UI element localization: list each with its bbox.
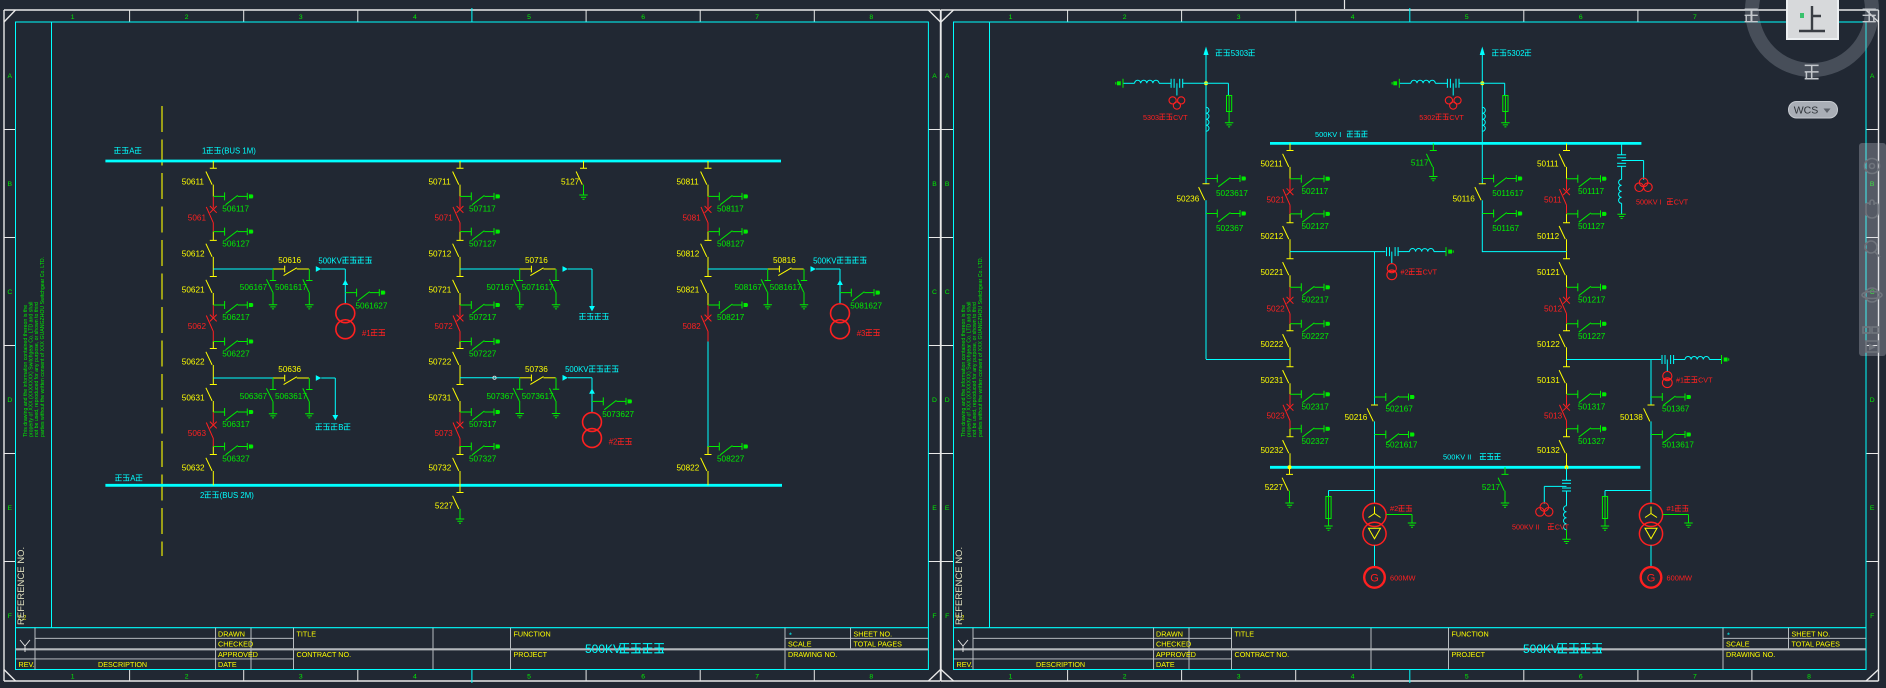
svg-text:2: 2 xyxy=(185,674,189,681)
svg-text:8: 8 xyxy=(1807,674,1811,681)
svg-text:E: E xyxy=(8,505,13,512)
svg-text:DRAWING NO.: DRAWING NO. xyxy=(788,650,837,659)
svg-text:D: D xyxy=(1870,397,1875,404)
svg-text:50616: 50616 xyxy=(278,256,301,265)
svg-text:50232: 50232 xyxy=(1261,446,1284,455)
svg-text:501117: 501117 xyxy=(1578,187,1605,196)
svg-text:507327: 507327 xyxy=(469,455,497,464)
svg-text:50611: 50611 xyxy=(182,177,205,186)
svg-text:TITLE: TITLE xyxy=(297,629,317,638)
svg-text:8: 8 xyxy=(869,14,873,21)
svg-text:502327: 502327 xyxy=(1302,437,1330,446)
svg-text:B: B xyxy=(945,181,950,188)
svg-text:CVT: CVT xyxy=(1698,376,1713,385)
svg-text:500KV I: 500KV I xyxy=(1315,130,1341,139)
svg-text:SHEET NO.: SHEET NO. xyxy=(854,629,893,638)
svg-text:507227: 507227 xyxy=(469,350,497,359)
svg-text:1: 1 xyxy=(202,147,206,156)
svg-text:#2: #2 xyxy=(1390,504,1398,513)
svg-text:D: D xyxy=(7,397,12,404)
svg-text:WCS: WCS xyxy=(1794,105,1819,117)
svg-text:3: 3 xyxy=(299,674,303,681)
svg-text:5023617: 5023617 xyxy=(1216,189,1248,198)
svg-text:50811: 50811 xyxy=(677,177,700,186)
svg-text:50216: 50216 xyxy=(1345,413,1368,422)
svg-text:50221: 50221 xyxy=(1261,268,1284,277)
svg-text:502117: 502117 xyxy=(1302,187,1329,196)
svg-text:5: 5 xyxy=(1465,14,1469,21)
svg-text:DRAWING NO.: DRAWING NO. xyxy=(1726,650,1775,659)
svg-text:B: B xyxy=(8,181,13,188)
svg-text:5063617: 5063617 xyxy=(275,392,307,401)
svg-text:8: 8 xyxy=(869,674,873,681)
svg-text:507167: 507167 xyxy=(487,283,515,292)
svg-text:CVT: CVT xyxy=(1423,268,1438,277)
svg-text:500KV: 500KV xyxy=(585,642,621,656)
svg-text:CHECKED: CHECKED xyxy=(218,640,253,649)
svg-text:507367: 507367 xyxy=(487,392,515,401)
svg-text:5061617: 5061617 xyxy=(275,283,307,292)
svg-text:5072: 5072 xyxy=(435,322,454,331)
svg-text:5073: 5073 xyxy=(435,429,454,438)
svg-text:1: 1 xyxy=(71,14,75,21)
svg-text:F: F xyxy=(8,613,12,620)
svg-text:CVT: CVT xyxy=(1173,113,1188,122)
svg-text:REV.: REV. xyxy=(957,660,973,669)
svg-text:508227: 508227 xyxy=(717,455,745,464)
svg-text:F: F xyxy=(945,613,949,620)
svg-text:5: 5 xyxy=(527,14,531,21)
svg-text:502167: 502167 xyxy=(1386,405,1414,414)
svg-text:APPROVED: APPROVED xyxy=(218,650,258,659)
svg-text:5117: 5117 xyxy=(1411,159,1429,168)
svg-text:5217: 5217 xyxy=(1482,483,1501,492)
svg-text:DATE: DATE xyxy=(218,660,237,669)
svg-text:FUNCTION: FUNCTION xyxy=(514,629,551,638)
svg-text:50712: 50712 xyxy=(429,250,452,259)
svg-text:F: F xyxy=(932,613,936,620)
svg-text:50131: 50131 xyxy=(1537,376,1560,385)
svg-text:C: C xyxy=(932,289,937,296)
svg-text:501327: 501327 xyxy=(1578,437,1606,446)
svg-text:parties without the written co: parties without the written consent of X… xyxy=(40,257,46,437)
svg-text:50812: 50812 xyxy=(677,250,700,259)
svg-text:5302: 5302 xyxy=(1507,49,1524,58)
svg-text:REFERENCE NO.: REFERENCE NO. xyxy=(954,547,965,625)
svg-text:50732: 50732 xyxy=(429,464,452,473)
svg-text:50821: 50821 xyxy=(677,286,700,295)
svg-text:5082: 5082 xyxy=(683,322,702,331)
svg-text:5073627: 5073627 xyxy=(602,410,634,419)
svg-text:6: 6 xyxy=(641,14,645,21)
svg-text:parties without the written co: parties without the written consent of X… xyxy=(978,257,984,437)
svg-text:50816: 50816 xyxy=(773,256,796,265)
svg-text:4: 4 xyxy=(413,674,417,681)
svg-text:CVT: CVT xyxy=(1674,198,1689,207)
svg-text:508117: 508117 xyxy=(717,204,744,213)
svg-text:DESCRIPTION: DESCRIPTION xyxy=(98,660,147,669)
svg-text:*: * xyxy=(1727,631,1730,640)
svg-text:600MW: 600MW xyxy=(1390,574,1415,583)
svg-text:5081: 5081 xyxy=(683,214,702,223)
svg-text:500KV I: 500KV I xyxy=(1636,198,1662,207)
svg-text:2: 2 xyxy=(185,14,189,21)
svg-text:5081627: 5081627 xyxy=(850,301,882,310)
svg-text:5061: 5061 xyxy=(188,214,207,223)
svg-text:50711: 50711 xyxy=(429,177,452,186)
svg-text:50111: 50111 xyxy=(1537,160,1559,169)
svg-text:50121: 50121 xyxy=(1537,268,1560,277)
svg-text:CONTRACT NO.: CONTRACT NO. xyxy=(1235,650,1290,659)
svg-text:*: * xyxy=(789,631,792,640)
svg-text:50236: 50236 xyxy=(1177,195,1200,204)
svg-text:502127: 502127 xyxy=(1302,222,1330,231)
svg-text:507127: 507127 xyxy=(469,240,497,249)
svg-text:5303: 5303 xyxy=(1231,49,1248,58)
svg-text:507117: 507117 xyxy=(469,204,496,213)
svg-text:50132: 50132 xyxy=(1537,446,1560,455)
svg-text:G: G xyxy=(1370,572,1379,584)
svg-text:TOTAL PAGES: TOTAL PAGES xyxy=(1792,640,1841,649)
svg-text:3: 3 xyxy=(1237,674,1241,681)
svg-text:G: G xyxy=(1647,572,1656,584)
svg-text:B: B xyxy=(932,181,937,188)
svg-text:6: 6 xyxy=(1579,14,1583,21)
svg-text:5: 5 xyxy=(1465,674,1469,681)
svg-text:506117: 506117 xyxy=(222,204,249,213)
svg-text:50621: 50621 xyxy=(182,286,205,295)
svg-text:5013617: 5013617 xyxy=(1662,441,1694,450)
svg-text:50716: 50716 xyxy=(525,256,548,265)
svg-text:3: 3 xyxy=(299,14,303,21)
svg-text:CONTRACT NO.: CONTRACT NO. xyxy=(297,650,352,659)
svg-text:506367: 506367 xyxy=(240,392,268,401)
svg-text:50122: 50122 xyxy=(1537,340,1560,349)
svg-text:50822: 50822 xyxy=(677,464,700,473)
svg-text:DRAWN: DRAWN xyxy=(218,629,245,638)
svg-text:50138: 50138 xyxy=(1620,413,1643,422)
svg-text:5021: 5021 xyxy=(1267,196,1286,205)
svg-text:500KV: 500KV xyxy=(565,365,589,374)
svg-text:600MW: 600MW xyxy=(1667,574,1692,583)
svg-text:508217: 508217 xyxy=(717,313,745,322)
svg-text:5023: 5023 xyxy=(1267,411,1286,420)
svg-text:PROJECT: PROJECT xyxy=(514,650,548,659)
svg-text:508127: 508127 xyxy=(717,240,745,249)
svg-text:5073617: 5073617 xyxy=(522,392,554,401)
svg-text:1: 1 xyxy=(71,674,75,681)
svg-text:50636: 50636 xyxy=(278,365,301,374)
svg-text:506327: 506327 xyxy=(222,455,250,464)
svg-text:506167: 506167 xyxy=(240,283,268,292)
svg-text:50212: 50212 xyxy=(1261,232,1284,241)
svg-text:#3: #3 xyxy=(857,329,866,338)
svg-text:E: E xyxy=(945,505,950,512)
svg-text:5022: 5022 xyxy=(1267,304,1286,313)
svg-text:SCALE: SCALE xyxy=(1726,640,1750,649)
svg-text:6: 6 xyxy=(641,674,645,681)
svg-text:2: 2 xyxy=(1123,14,1127,21)
svg-text:501317: 501317 xyxy=(1578,402,1606,411)
svg-text:507217: 507217 xyxy=(469,313,497,322)
svg-text:507317: 507317 xyxy=(469,420,497,429)
svg-text:50231: 50231 xyxy=(1261,376,1284,385)
svg-text:TOTAL PAGES: TOTAL PAGES xyxy=(854,640,903,649)
svg-text:500KV II: 500KV II xyxy=(1512,523,1540,532)
svg-text:B: B xyxy=(338,423,343,432)
svg-text:F: F xyxy=(1870,613,1874,620)
svg-text:7: 7 xyxy=(1693,14,1697,21)
svg-text:1: 1 xyxy=(1009,674,1013,681)
svg-text:CHECKED: CHECKED xyxy=(1156,640,1191,649)
svg-text:REFERENCE NO.: REFERENCE NO. xyxy=(16,547,27,625)
svg-text:4: 4 xyxy=(1351,674,1355,681)
svg-text:500KV: 500KV xyxy=(1523,642,1559,656)
svg-text:7: 7 xyxy=(755,14,759,21)
svg-text:50112: 50112 xyxy=(1537,232,1560,241)
svg-text:501167: 501167 xyxy=(1492,224,1519,233)
svg-text:5063: 5063 xyxy=(188,429,207,438)
svg-text:5011617: 5011617 xyxy=(1492,189,1524,198)
svg-text:5061627: 5061627 xyxy=(356,301,388,310)
svg-text:#2: #2 xyxy=(1401,268,1409,277)
svg-text:502317: 502317 xyxy=(1302,402,1330,411)
svg-text:5012: 5012 xyxy=(1544,304,1563,313)
svg-text:50116: 50116 xyxy=(1453,195,1476,204)
svg-text:E: E xyxy=(1870,505,1875,512)
svg-text:#1: #1 xyxy=(1676,376,1684,385)
svg-text:5303: 5303 xyxy=(1143,113,1159,122)
svg-text:PROJECT: PROJECT xyxy=(1452,650,1486,659)
svg-text:A: A xyxy=(8,73,13,80)
svg-text:5071: 5071 xyxy=(435,214,454,223)
svg-text:50632: 50632 xyxy=(182,464,205,473)
svg-text:DRAWN: DRAWN xyxy=(1156,629,1183,638)
svg-text:7: 7 xyxy=(1693,674,1697,681)
svg-text:7: 7 xyxy=(755,674,759,681)
svg-text:506217: 506217 xyxy=(222,313,250,322)
svg-text:4: 4 xyxy=(413,14,417,21)
svg-text:A: A xyxy=(945,73,950,80)
svg-text:50622: 50622 xyxy=(182,358,205,367)
svg-text:5062: 5062 xyxy=(188,322,207,331)
svg-text:502367: 502367 xyxy=(1216,224,1244,233)
svg-text:FUNCTION: FUNCTION xyxy=(1452,629,1489,638)
svg-text:5227: 5227 xyxy=(1265,483,1284,492)
svg-text:506127: 506127 xyxy=(222,240,250,249)
svg-text:(BUS 2M): (BUS 2M) xyxy=(220,491,255,500)
svg-text:(BUS 1M): (BUS 1M) xyxy=(222,147,257,156)
svg-text:D: D xyxy=(932,397,937,404)
svg-text:#1: #1 xyxy=(362,329,371,338)
svg-text:506317: 506317 xyxy=(222,420,250,429)
svg-text:50612: 50612 xyxy=(182,250,205,259)
svg-text:A: A xyxy=(932,73,937,80)
svg-text:5127: 5127 xyxy=(561,177,580,186)
svg-text:6: 6 xyxy=(1579,674,1583,681)
svg-text:506227: 506227 xyxy=(222,350,250,359)
svg-text:SHEET NO.: SHEET NO. xyxy=(1792,629,1831,638)
svg-text:CVT: CVT xyxy=(1555,523,1570,532)
svg-text:5013: 5013 xyxy=(1544,411,1563,420)
svg-text:501227: 501227 xyxy=(1578,332,1606,341)
svg-text:1: 1 xyxy=(1009,14,1013,21)
svg-text:2: 2 xyxy=(1123,674,1127,681)
svg-text:500KV II: 500KV II xyxy=(1443,453,1471,462)
svg-text:50631: 50631 xyxy=(182,394,205,403)
svg-text:5071617: 5071617 xyxy=(522,283,554,292)
svg-text:2: 2 xyxy=(200,491,204,500)
svg-text:50222: 50222 xyxy=(1261,340,1284,349)
svg-text:500KV: 500KV xyxy=(813,256,837,265)
svg-text:50731: 50731 xyxy=(429,394,452,403)
svg-text:A: A xyxy=(130,474,136,483)
svg-text:5081617: 5081617 xyxy=(770,283,802,292)
svg-text:501367: 501367 xyxy=(1662,405,1690,414)
svg-text:#2: #2 xyxy=(609,438,618,447)
svg-text:APPROVED: APPROVED xyxy=(1156,650,1196,659)
svg-text:TITLE: TITLE xyxy=(1235,629,1255,638)
svg-text:50722: 50722 xyxy=(429,358,452,367)
svg-text:502217: 502217 xyxy=(1302,295,1330,304)
svg-text:5021617: 5021617 xyxy=(1386,441,1418,450)
svg-text:E: E xyxy=(932,505,937,512)
svg-text:#1: #1 xyxy=(1667,504,1675,513)
svg-text:A: A xyxy=(129,147,135,156)
svg-text:5227: 5227 xyxy=(435,501,454,510)
svg-text:5: 5 xyxy=(527,674,531,681)
svg-text:SCALE: SCALE xyxy=(788,640,812,649)
svg-text:508167: 508167 xyxy=(735,283,763,292)
svg-text:A: A xyxy=(1870,73,1875,80)
svg-text:50721: 50721 xyxy=(429,286,452,295)
svg-text:501127: 501127 xyxy=(1578,222,1605,231)
svg-text:5011: 5011 xyxy=(1544,196,1562,205)
svg-text:50736: 50736 xyxy=(525,365,548,374)
svg-text:501217: 501217 xyxy=(1578,295,1606,304)
svg-text:500KV: 500KV xyxy=(318,256,342,265)
svg-text:4: 4 xyxy=(1351,14,1355,21)
svg-text:5302: 5302 xyxy=(1419,113,1435,122)
svg-text:50211: 50211 xyxy=(1261,160,1284,169)
svg-text:3: 3 xyxy=(1237,14,1241,21)
svg-text:C: C xyxy=(7,289,12,296)
svg-text:C: C xyxy=(945,289,950,296)
svg-text:REV.: REV. xyxy=(19,660,35,669)
svg-text:502227: 502227 xyxy=(1302,332,1330,341)
svg-text:D: D xyxy=(945,397,950,404)
svg-text:DESCRIPTION: DESCRIPTION xyxy=(1036,660,1085,669)
svg-text:DATE: DATE xyxy=(1156,660,1175,669)
svg-text:CVT: CVT xyxy=(1449,113,1464,122)
